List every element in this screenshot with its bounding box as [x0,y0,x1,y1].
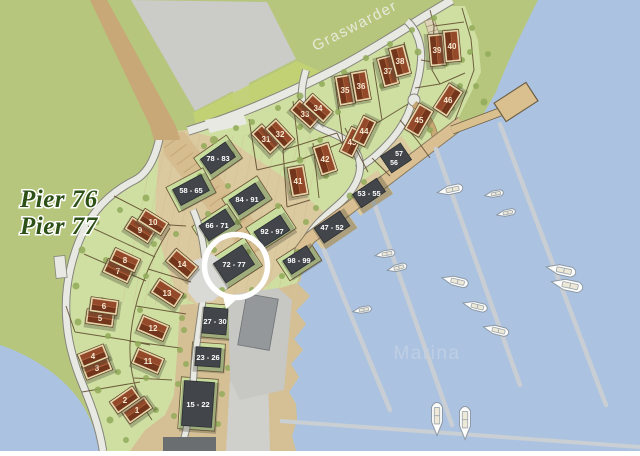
svg-text:Marina: Marina [393,343,460,364]
svg-text:4: 4 [91,352,96,361]
svg-text:40: 40 [448,42,457,51]
svg-text:35: 35 [341,86,350,95]
svg-text:14: 14 [178,260,187,269]
svg-text:1: 1 [135,406,140,415]
svg-text:38: 38 [396,57,405,66]
svg-text:58 - 65: 58 - 65 [179,186,202,195]
svg-text:11: 11 [144,357,153,366]
svg-text:10: 10 [149,218,158,227]
svg-text:57: 57 [395,151,403,158]
svg-text:2: 2 [123,396,128,405]
svg-text:23 - 26: 23 - 26 [196,353,219,362]
svg-text:44: 44 [360,127,369,136]
svg-text:46: 46 [444,96,453,105]
svg-text:78 - 83: 78 - 83 [206,154,229,163]
svg-text:53 - 55: 53 - 55 [357,189,380,198]
svg-text:15 - 22: 15 - 22 [186,400,209,409]
svg-text:8: 8 [123,256,128,265]
svg-text:13: 13 [163,289,172,298]
svg-text:12: 12 [149,324,158,333]
svg-text:66 - 71: 66 - 71 [205,221,228,230]
svg-text:92 - 97: 92 - 97 [260,227,283,236]
svg-text:34: 34 [314,104,323,113]
svg-text:45: 45 [415,116,424,125]
svg-text:Pier 77: Pier 77 [19,213,99,240]
svg-text:56: 56 [390,160,398,167]
svg-text:41: 41 [294,177,303,186]
svg-text:72 - 77: 72 - 77 [222,260,245,269]
svg-text:98 - 99: 98 - 99 [287,256,310,265]
svg-text:27 - 30: 27 - 30 [203,317,226,326]
svg-text:Pier 76: Pier 76 [19,186,98,213]
svg-text:47 - 52: 47 - 52 [320,223,343,232]
svg-text:42: 42 [321,155,330,164]
svg-text:32: 32 [276,130,285,139]
svg-text:84 - 91: 84 - 91 [235,195,258,204]
svg-text:36: 36 [357,82,366,91]
svg-text:6: 6 [102,302,107,311]
